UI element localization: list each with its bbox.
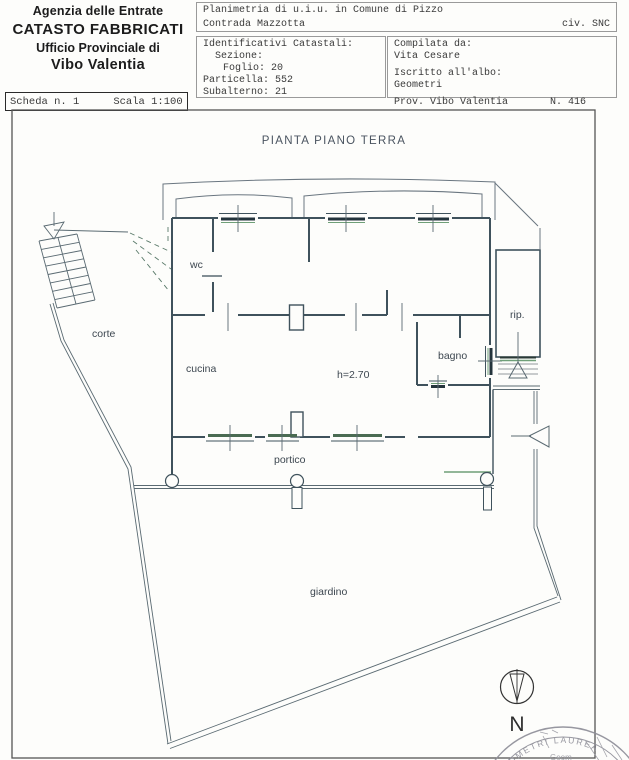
stamp-inner-text: Geom bbox=[550, 753, 572, 760]
windows bbox=[206, 205, 502, 451]
dashed-path-lines bbox=[130, 227, 171, 291]
gate-symbol bbox=[511, 426, 549, 447]
label-corte: corte bbox=[92, 328, 116, 340]
label-portico: portico bbox=[274, 454, 306, 466]
svg-text:RI E GEOMETRI LAUREA: RI E GEOMETRI LAUREA bbox=[486, 735, 601, 760]
label-giardino: giardino bbox=[310, 586, 348, 598]
room-labels: wc corte cucina h=2.70 bagno rip. portic… bbox=[92, 259, 525, 598]
property-boundary bbox=[50, 303, 561, 749]
label-rip: rip. bbox=[510, 309, 525, 321]
plan-title: PIANTA PIANO TERRA bbox=[262, 135, 406, 147]
label-height: h=2.70 bbox=[337, 369, 370, 381]
label-bagno: bagno bbox=[438, 350, 467, 362]
stamp-arc-text: RI E GEOMETRI LAUREA bbox=[486, 735, 601, 760]
portico-colonnade bbox=[134, 473, 494, 511]
north-label: N bbox=[509, 713, 524, 736]
external-stairs bbox=[39, 212, 128, 308]
label-wc: wc bbox=[189, 259, 203, 271]
surveyor-stamp: RI E GEOMETRI LAUREA Geom bbox=[477, 727, 629, 760]
north-arrow-icon: N bbox=[501, 669, 534, 736]
floor-plan-drawing: PIANTA PIANO TERRA bbox=[0, 0, 629, 760]
wall-pillars bbox=[290, 305, 304, 437]
label-cucina: cucina bbox=[186, 363, 217, 375]
cadastral-floorplan-page: Agenzia delle Entrate CATASTO FABBRICATI… bbox=[0, 0, 629, 760]
